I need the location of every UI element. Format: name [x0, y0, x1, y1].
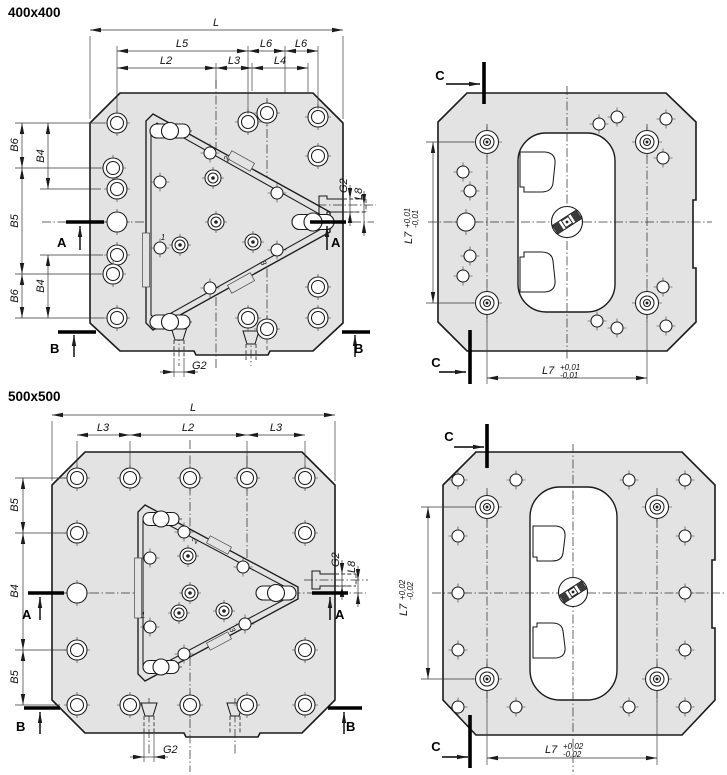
section-label-a-left: A	[57, 235, 67, 250]
dim-label-g2-right: G2	[330, 552, 342, 567]
view-geometry	[426, 62, 712, 384]
dim-label-b6-top: B6	[9, 137, 21, 151]
section-label-b-left: B	[16, 719, 25, 734]
dim-label-g2-right: G2	[338, 178, 350, 193]
dim-label-b6-bottom: B6	[9, 288, 21, 302]
dim-label-l8: L8	[353, 187, 365, 200]
dim-label-b4-bottom: B4	[35, 279, 47, 292]
view-geometry	[421, 424, 724, 772]
view-title-500x500: 500x500	[8, 389, 61, 404]
view-geometry	[15, 28, 376, 377]
dim-label-b4: B4	[9, 584, 21, 597]
dim-label-l7-left: L7	[398, 603, 410, 616]
drawing-sheet: 400x400 L L5 L6 L6 L2 L3 L4 B6 B5 B6 B4 …	[0, 0, 727, 775]
tolerance-minus: -0,01	[411, 210, 420, 228]
dim-label-l2: L2	[160, 55, 172, 67]
technical-drawing: 400x400 L L5 L6 L6 L2 L3 L4 B6 B5 B6 B4 …	[0, 0, 727, 775]
dim-label-g2-bottom: G2	[163, 744, 178, 756]
section-label-b-right: B	[354, 341, 363, 356]
dim-label-b5-bottom: B5	[9, 669, 21, 683]
dim-l7-left: L7 +0,01 -0,01	[403, 208, 420, 244]
view-geometry	[15, 413, 368, 772]
view-400x400-back: C C L7 +0,01 -0,01 L7 +0,01 -0,01	[403, 62, 712, 384]
dim-label-l: L	[213, 17, 219, 29]
dim-label-l7-bottom: L7	[545, 744, 558, 756]
view-500x500-front: 500x500 L L3 L2 L3 B5 B4 B5 A A B B G2 L…	[8, 389, 368, 772]
dim-label-l: L	[190, 402, 196, 414]
dim-label-l3b: L3	[270, 422, 283, 434]
dim-l7-bottom: L7 +0,01 -0,01	[542, 363, 580, 380]
dim-label-g2-bottom: G2	[192, 360, 207, 372]
dim-label-l2: L2	[182, 422, 194, 434]
dim-label-l7-bottom: L7	[542, 365, 555, 377]
section-label-b-right: B	[346, 719, 355, 734]
dim-label-l5: L5	[176, 38, 189, 50]
section-label-c-bottom: C	[431, 739, 441, 754]
section-label-c-top: C	[444, 429, 454, 444]
dim-l7-bottom: L7 +0,02 -0,02	[545, 742, 584, 759]
view-400x400-front: 400x400 L L5 L6 L6 L2 L3 L4 B6 B5 B6 B4 …	[8, 5, 376, 377]
dim-label-l3a: L3	[97, 422, 110, 434]
position-label-1: 1	[141, 611, 145, 620]
dim-label-l4: L4	[274, 55, 286, 67]
dim-l7-left: L7 +0,02 -0,02	[398, 579, 415, 616]
view-500x500-back: C C L7 +0,02 -0,02 L7 +0,02 -0,02	[398, 424, 724, 772]
dim-label-b4-top: B4	[35, 149, 47, 162]
section-label-c-bottom: C	[431, 355, 441, 370]
dim-label-l6a: L6	[260, 38, 273, 50]
tolerance-minus: -0,02	[563, 750, 582, 759]
section-label-b-left: B	[50, 341, 59, 356]
dim-label-l8: L8	[346, 560, 358, 573]
section-label-a-left: A	[22, 607, 32, 622]
section-label-a-right: A	[331, 235, 341, 250]
dim-label-b5-top: B5	[9, 497, 21, 511]
dim-label-l3: L3	[228, 55, 241, 67]
view-title-400x400: 400x400	[8, 5, 61, 20]
position-label-1: 1	[161, 233, 165, 242]
section-label-a-right: A	[335, 607, 345, 622]
dim-label-l6b: L6	[295, 38, 308, 50]
dim-label-b5: B5	[9, 213, 21, 227]
dim-label-l7-left: L7	[403, 231, 415, 244]
tolerance-minus: -0,02	[406, 581, 415, 600]
tolerance-minus: -0,01	[560, 371, 578, 380]
section-label-c-top: C	[435, 68, 445, 83]
